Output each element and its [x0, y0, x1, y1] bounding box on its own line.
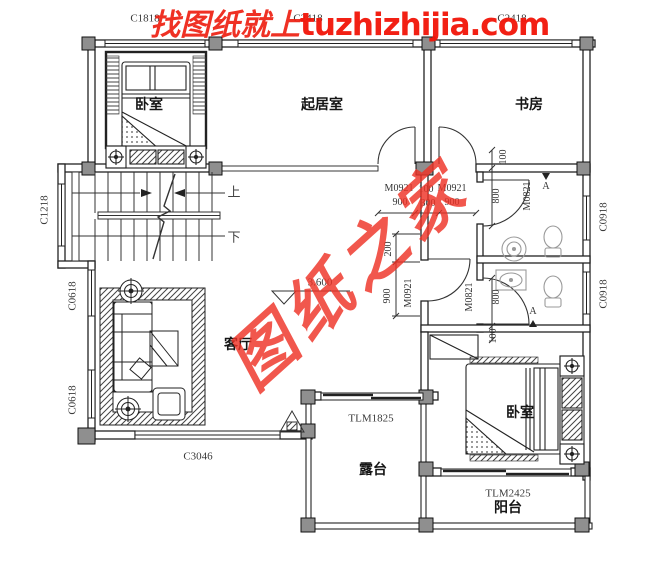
door-label-tlm2425: TLM2425: [485, 489, 530, 500]
dim-800-lower: 800: [492, 290, 502, 305]
window-c0918-lower: [583, 272, 590, 314]
section-mark-a-lower: A: [529, 307, 536, 317]
sink-lower: [496, 270, 526, 290]
window-label-c0618-upper: C0618: [68, 281, 79, 310]
bathroom-fixtures: [496, 226, 562, 307]
room-label-balcony: 阳台: [494, 502, 522, 516]
toilet-lower: [544, 276, 562, 307]
bedroom-bottom-furniture: [430, 335, 584, 464]
window-c1218: [58, 184, 65, 246]
staircase: [72, 172, 225, 261]
room-label-bedroom-top: 卧室: [135, 99, 163, 113]
window-label-c3046: C3046: [183, 452, 212, 463]
stair-up-label: 上: [227, 186, 240, 199]
watermark-domain: tuzhizhijia.com: [300, 7, 549, 43]
room-label-terrace: 露台: [359, 464, 387, 478]
room-label-study: 书房: [515, 99, 543, 113]
dim-100-bath-top: 100: [499, 150, 509, 165]
drain-marker: [280, 411, 304, 432]
room-label-family: 起居室: [301, 99, 343, 113]
section-mark-a-upper: A: [542, 182, 549, 192]
window-c0918-upper: [583, 196, 590, 240]
watermark-top: 找图纸就上tuzhizhijia.com: [150, 10, 549, 41]
window-label-c0918-lower: C0918: [599, 279, 610, 308]
dim-100-bedroom: 100: [489, 329, 499, 344]
window-label-c0618-lower: C0618: [68, 385, 79, 414]
window-c3046: [135, 431, 280, 439]
door-label-m0921-hall: M0921: [404, 279, 414, 308]
window-c0618-upper: [88, 270, 95, 316]
hall-opening-beam: [218, 166, 378, 171]
window-label-c1218: C1218: [40, 195, 51, 224]
toilet-upper: [544, 226, 562, 257]
door-m0921-right: [439, 127, 476, 164]
door-label-m0821-upper: M0821: [523, 182, 533, 211]
window-c0618-lower: [88, 370, 95, 418]
door-m0821-lower: [483, 278, 529, 324]
watermark-tagline: 找图纸就上: [150, 9, 300, 42]
sliding-door-tlm2425: [441, 469, 571, 476]
window-label-c0918-upper: C0918: [599, 202, 610, 231]
floor-plan-page: C1818 C2418 C2418 卧室 起居室 书房 客厅 卧室 露台 阳台 …: [0, 0, 650, 584]
sliding-door-tlm1825: [321, 393, 423, 400]
stair-down-label: 下: [227, 231, 240, 244]
door-label-m0821-lower: M0821: [465, 283, 475, 312]
room-label-bedroom-bottom: 卧室: [506, 407, 534, 421]
living-room-furniture: [100, 278, 205, 425]
dim-800-upper: 800: [492, 189, 502, 204]
door-label-tlm1825: TLM1825: [348, 414, 393, 425]
